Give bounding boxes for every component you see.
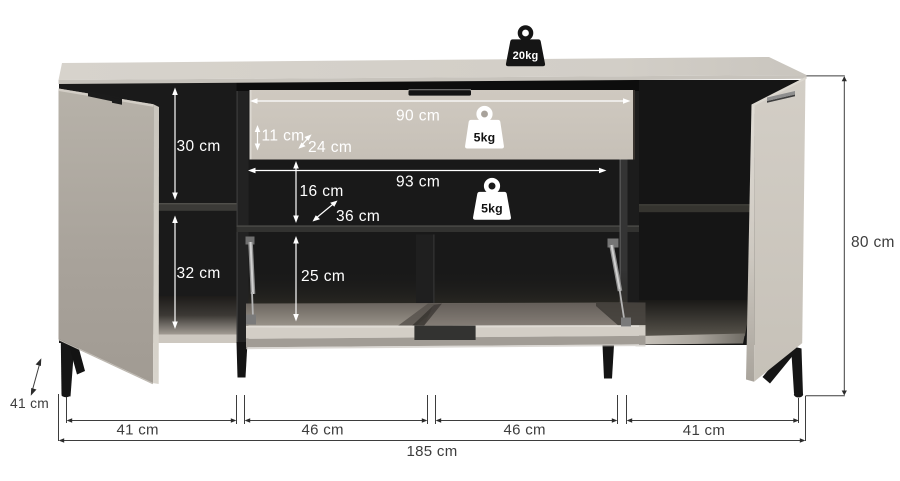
svg-text:36 cm: 36 cm — [336, 208, 380, 225]
svg-text:90 cm: 90 cm — [396, 108, 440, 125]
svg-text:24 cm: 24 cm — [308, 139, 352, 156]
svg-text:93 cm: 93 cm — [396, 174, 440, 191]
svg-text:185 cm: 185 cm — [407, 443, 458, 460]
svg-text:16 cm: 16 cm — [300, 183, 344, 200]
svg-text:80 cm: 80 cm — [851, 234, 895, 251]
svg-text:11 cm: 11 cm — [262, 128, 305, 145]
svg-text:20kg: 20kg — [513, 50, 539, 62]
svg-text:41 cm: 41 cm — [117, 422, 159, 439]
svg-text:41 cm: 41 cm — [10, 396, 49, 411]
svg-text:30 cm: 30 cm — [177, 138, 221, 155]
svg-text:46 cm: 46 cm — [504, 422, 546, 439]
svg-text:5kg: 5kg — [481, 201, 503, 215]
svg-text:25 cm: 25 cm — [301, 268, 345, 285]
svg-text:32 cm: 32 cm — [177, 265, 221, 282]
svg-text:5kg: 5kg — [474, 130, 496, 144]
svg-text:41 cm: 41 cm — [683, 422, 725, 439]
svg-text:46 cm: 46 cm — [302, 422, 344, 439]
